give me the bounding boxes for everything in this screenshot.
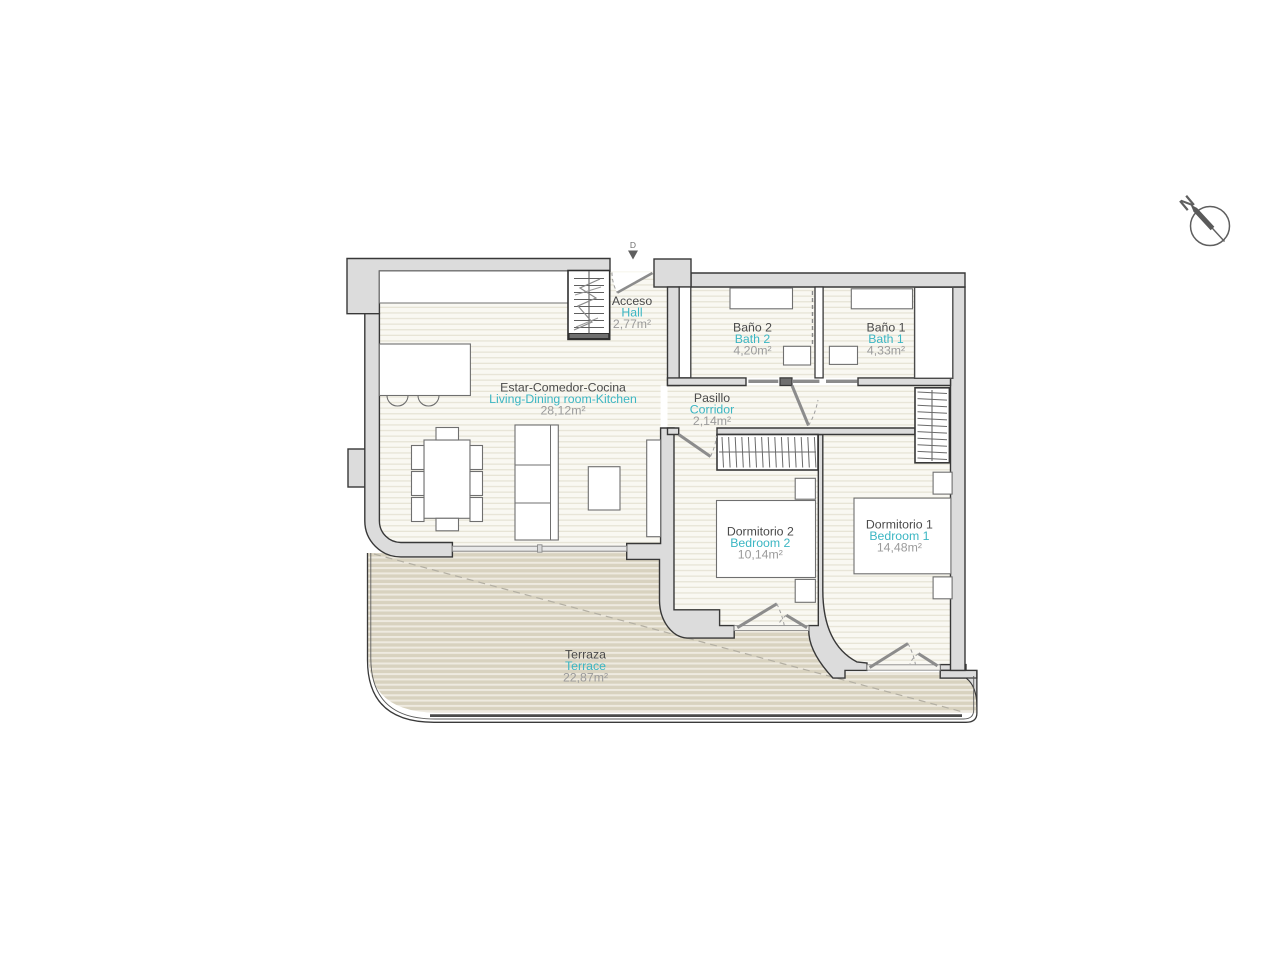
svg-text:Baño 2Bath 24,20m²: Baño 2Bath 24,20m²: [733, 321, 772, 358]
svg-text:PasilloCorridor2,14m²: PasilloCorridor2,14m²: [690, 391, 734, 428]
svg-text:D: D: [630, 240, 636, 250]
svg-text:Baño 1Bath 14,33m²: Baño 1Bath 14,33m²: [867, 321, 906, 358]
svg-text:TerrazaTerrace22,87m²: TerrazaTerrace22,87m²: [563, 648, 608, 685]
